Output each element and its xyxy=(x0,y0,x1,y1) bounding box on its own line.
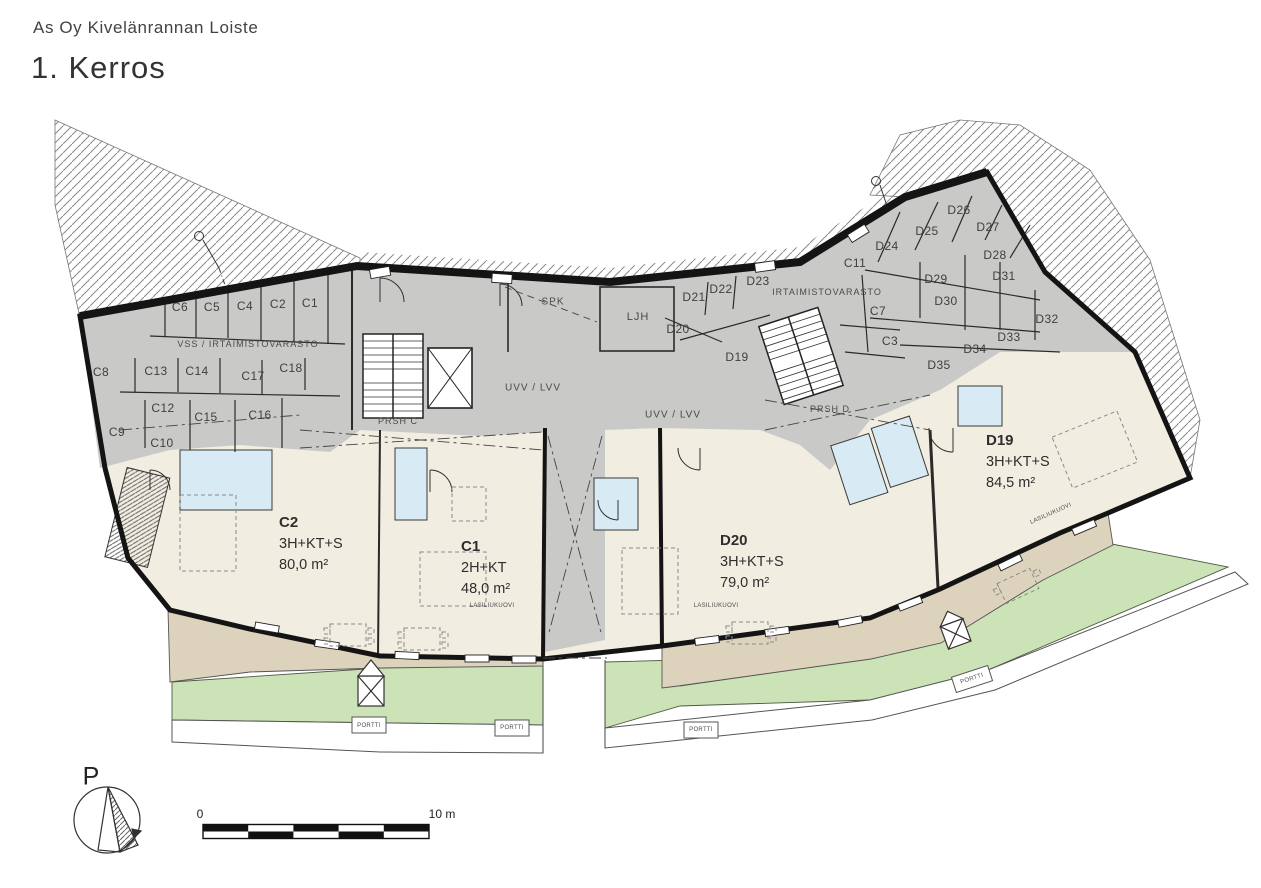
compass-rose xyxy=(74,787,141,853)
gate-box xyxy=(352,717,386,733)
gate-box xyxy=(495,720,529,736)
gate-box xyxy=(684,722,718,738)
entry-corridor xyxy=(545,428,605,652)
floor-plan-page: As Oy Kivelänrannan Loiste 1. Kerros 0 1… xyxy=(0,0,1261,888)
scale-bar xyxy=(203,825,429,839)
floor-plan-drawing xyxy=(0,0,1261,888)
